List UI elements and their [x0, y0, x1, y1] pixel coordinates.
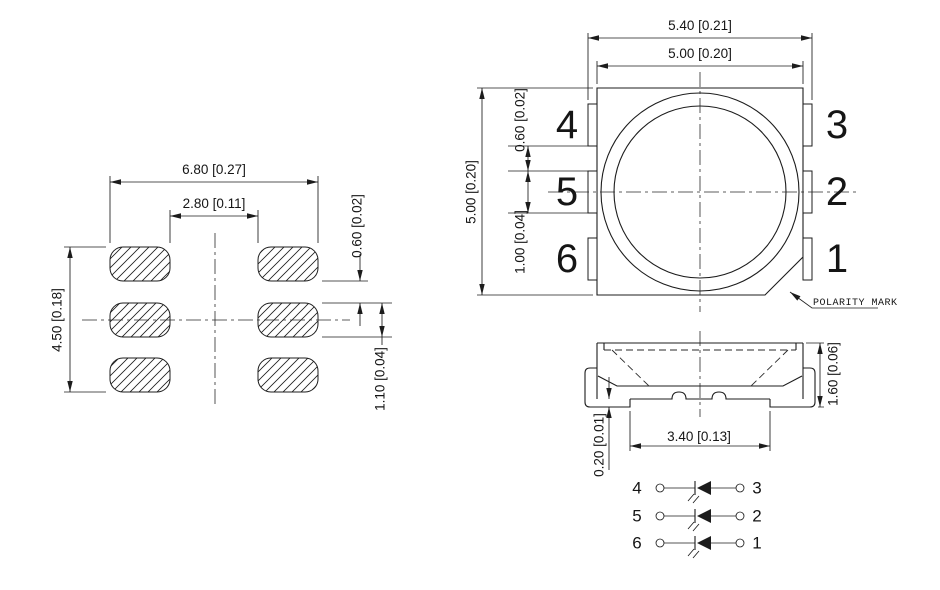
polarity-mark-label: POLARITY MARK: [813, 298, 898, 309]
pad: [258, 358, 318, 392]
dim-top-body-height: 5.00 [0.20]: [464, 160, 479, 224]
dim-footprint-outer-width: 6.80 [0.27]: [182, 162, 246, 177]
lead-6: [588, 238, 597, 280]
side-lead-left: [585, 368, 630, 407]
dim-top-lead-gap: 0.60 [0.02]: [513, 88, 528, 152]
schematic-row: 6 1: [632, 534, 761, 559]
diode-triangle: [697, 509, 711, 523]
terminal: [656, 539, 664, 547]
dim-footprint-height: 4.50 [0.18]: [50, 288, 65, 352]
schematic-pin-label: 3: [752, 479, 761, 498]
led-emission-marks: [688, 522, 699, 531]
side-lead-right: [770, 368, 815, 407]
lead-1: [803, 238, 812, 280]
dim-top-lead-width: 1.00 [0.04]: [513, 210, 528, 274]
schematic-pin-label: 6: [632, 534, 641, 553]
schematic-pin-label: 4: [632, 479, 641, 498]
dim-top-overall-width: 5.40 [0.21]: [668, 18, 732, 33]
dim-side-lead-thickness: 0.20 [0.01]: [592, 413, 607, 477]
dim-side-bottom-span: 3.40 [0.13]: [667, 429, 731, 444]
terminal: [736, 512, 744, 520]
schematic-pin-label: 2: [752, 507, 761, 526]
package-side-view: 1.60 [0.06] 3.40 [0.13] 0.20 [0.01]: [585, 331, 841, 477]
schematic-row: 4 3: [632, 479, 761, 504]
terminal: [656, 484, 664, 492]
drawing-canvas: 6.80 [0.27] 2.80 [0.11] 4.50 [0.18] 0.60…: [0, 0, 940, 590]
lead-3: [803, 104, 812, 146]
dim-footprint-pad-height: 1.10 [0.04]: [373, 347, 388, 411]
datasheet-drawing: 6.80 [0.27] 2.80 [0.11] 4.50 [0.18] 0.60…: [0, 0, 940, 590]
dim-footprint-inner-width: 2.80 [0.11]: [183, 196, 246, 211]
pad: [258, 247, 318, 281]
terminal: [656, 512, 664, 520]
package-top-view: 5.40 [0.21] 5.00 [0.20] 5.00 [0.20] 0.60…: [464, 18, 898, 312]
led-emission-marks: [688, 549, 699, 558]
pin-label-1: 1: [826, 237, 848, 281]
schematic-row: 5 2: [632, 507, 761, 532]
dim-top-body-width: 5.00 [0.20]: [668, 46, 732, 61]
pin-label-3: 3: [826, 103, 848, 147]
diode-triangle: [697, 481, 711, 495]
terminal: [736, 484, 744, 492]
pin-label-2: 2: [826, 170, 848, 214]
footprint-view: 6.80 [0.27] 2.80 [0.11] 4.50 [0.18] 0.60…: [50, 162, 393, 411]
pad: [110, 247, 170, 281]
dim-footprint-pad-gap: 0.60 [0.02]: [350, 194, 365, 258]
diode-triangle: [697, 536, 711, 550]
pin-label-6: 6: [556, 237, 578, 281]
circuit-schematic: 4 3 5 2 6 1: [632, 479, 761, 559]
schematic-pin-label: 1: [752, 534, 761, 553]
lead-4: [588, 104, 597, 146]
schematic-pin-label: 5: [632, 507, 641, 526]
pin-label-5: 5: [556, 170, 578, 214]
pin-label-4: 4: [556, 103, 578, 147]
pad: [110, 358, 170, 392]
dim-side-height: 1.60 [0.06]: [826, 342, 841, 406]
terminal: [736, 539, 744, 547]
led-emission-marks: [688, 494, 699, 503]
